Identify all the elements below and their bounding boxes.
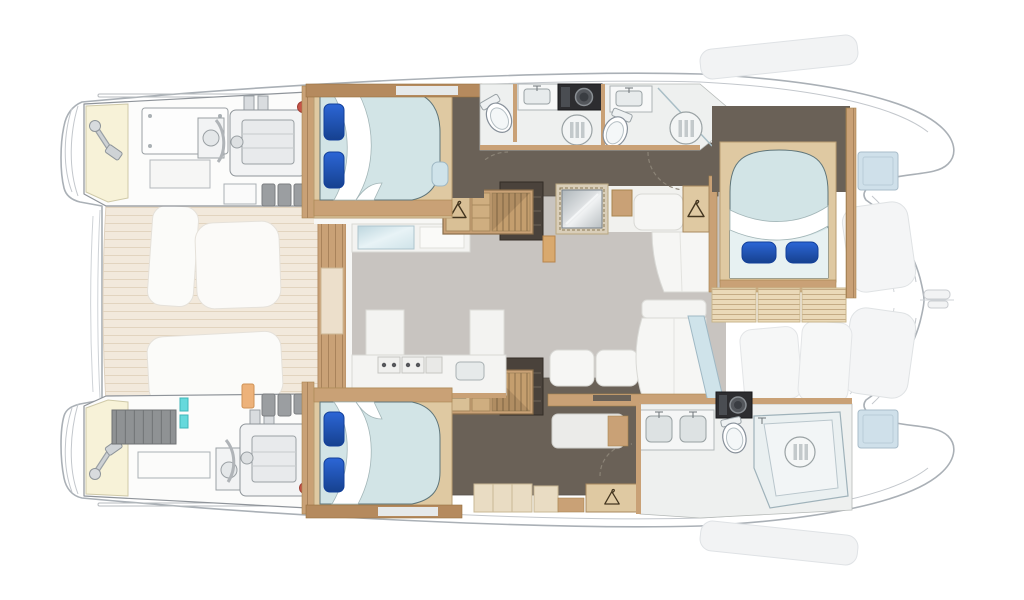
small-box-port [224, 184, 256, 204]
wall-divider [513, 84, 517, 142]
sink-icon [680, 416, 706, 442]
shower-enclosure [754, 412, 848, 508]
foredeck-seat-2 [739, 326, 803, 403]
bow-cleat-icon [924, 290, 950, 308]
wardrobe-forward [683, 186, 709, 232]
cockpit-table [195, 221, 282, 310]
mirror-cabinet [556, 184, 608, 234]
pillow [324, 458, 344, 492]
hull-window [378, 507, 438, 516]
cabin-starboard-aft [302, 382, 462, 518]
pillow [324, 104, 344, 140]
bed-head-board [314, 388, 452, 402]
equipment-box-3 [138, 452, 210, 478]
cabin-stool [432, 162, 448, 186]
pillow [742, 242, 776, 263]
ghost-roof-starboard [699, 520, 859, 566]
cabin-wall-strip [846, 108, 856, 298]
shower-drain-icon [562, 115, 592, 145]
pillow [324, 412, 344, 446]
washer-icon [558, 84, 602, 110]
wood-end-piece [543, 236, 555, 262]
stove-icon [378, 357, 442, 373]
battery-bank [112, 410, 176, 444]
hull-window [396, 86, 458, 95]
galley-column-2 [470, 310, 504, 356]
wood-box [608, 416, 628, 446]
pillow [786, 242, 818, 263]
sink-icon [646, 416, 672, 442]
sink-icon [518, 84, 558, 110]
galley-column-1 [366, 310, 404, 356]
cabin-wall-strip [302, 86, 314, 218]
cockpit-stern-lines [91, 210, 100, 398]
floorplan-canvas [0, 0, 1024, 600]
engine-room-starboard [84, 384, 311, 508]
orange-unit [242, 384, 254, 408]
sideboard-glass-top [358, 226, 414, 249]
vanity-double-sink [640, 410, 714, 450]
shower-drain-icon [785, 437, 815, 467]
bed-foot-board [314, 200, 452, 216]
slatted-lockers [712, 288, 846, 322]
salon-sliding-door [321, 268, 343, 334]
cabin-port-aft [302, 84, 484, 218]
pillow [324, 152, 344, 188]
bathrooms-port [478, 84, 740, 151]
deck-hatch-starboard [858, 410, 898, 448]
cabin-wall-strip [302, 382, 314, 514]
equipment-box-2 [150, 160, 210, 188]
wood-trim-forward [709, 176, 717, 292]
canisters-starboard [262, 394, 307, 416]
foredeck-sunpad-starboard [840, 306, 917, 400]
teal-unit-2 [180, 415, 188, 428]
bathroom-starboard [636, 392, 852, 518]
pump-wheel-port [203, 130, 219, 146]
wall-divider [636, 404, 641, 514]
deck-hatch-port [858, 152, 898, 190]
aft-cockpit [103, 202, 352, 405]
bathroom-sill [480, 145, 700, 150]
hull-window-band-starboard [306, 505, 462, 518]
engine-room-port [0, 0, 309, 206]
cockpit-seat-1 [147, 205, 200, 308]
wardrobe-starboard-aft [586, 484, 638, 512]
salon-aft-sill [346, 204, 352, 402]
foredeck-seat-3 [797, 320, 852, 403]
canisters-port [262, 184, 307, 206]
washer-icon [716, 392, 752, 418]
console-bar [593, 395, 631, 401]
galley-sink [456, 362, 484, 380]
yacht-floorplan [0, 0, 1024, 600]
hull-window-band-port [306, 84, 482, 97]
ghost-roof-port [699, 34, 859, 80]
teal-unit-1 [180, 398, 188, 411]
wood-box [612, 190, 632, 216]
